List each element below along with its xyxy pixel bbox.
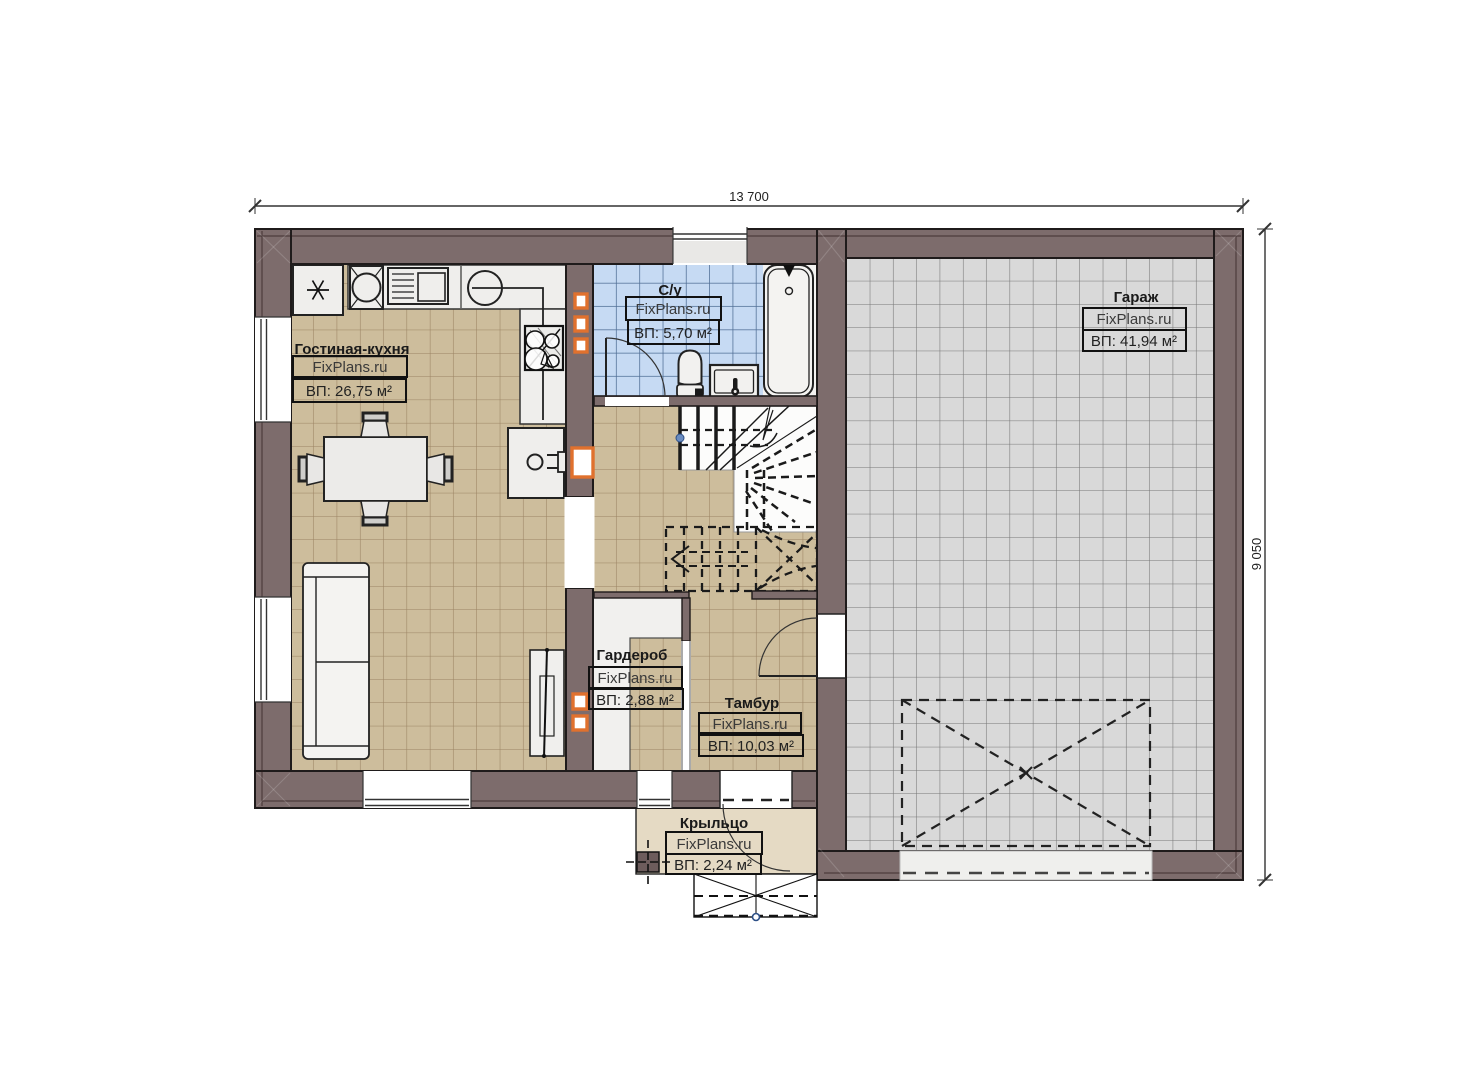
svg-text:Тамбур: Тамбур [725, 695, 779, 712]
svg-text:FixPlans.ru: FixPlans.ru [597, 670, 672, 687]
svg-text:Крыльцо: Крыльцо [680, 815, 748, 832]
svg-text:FixPlans.ru: FixPlans.ru [1096, 311, 1171, 328]
svg-text:ВП: 41,94 м²: ВП: 41,94 м² [1091, 333, 1177, 350]
svg-text:ВП: 26,75 м²: ВП: 26,75 м² [306, 383, 392, 400]
svg-text:Гараж: Гараж [1114, 289, 1159, 306]
svg-text:ВП: 2,24 м²: ВП: 2,24 м² [674, 857, 752, 874]
svg-text:ВП: 5,70 м²: ВП: 5,70 м² [634, 325, 712, 342]
svg-text:FixPlans.ru: FixPlans.ru [712, 716, 787, 733]
svg-text:ВП: 10,03 м²: ВП: 10,03 м² [708, 738, 794, 755]
svg-text:Гардероб: Гардероб [597, 647, 668, 664]
svg-text:FixPlans.ru: FixPlans.ru [635, 301, 710, 318]
svg-text:9 050: 9 050 [1249, 538, 1264, 571]
svg-text:ВП: 2,88 м²: ВП: 2,88 м² [596, 692, 674, 709]
svg-text:FixPlans.ru: FixPlans.ru [676, 836, 751, 853]
svg-text:13 700: 13 700 [729, 189, 769, 204]
svg-text:FixPlans.ru: FixPlans.ru [312, 359, 387, 376]
